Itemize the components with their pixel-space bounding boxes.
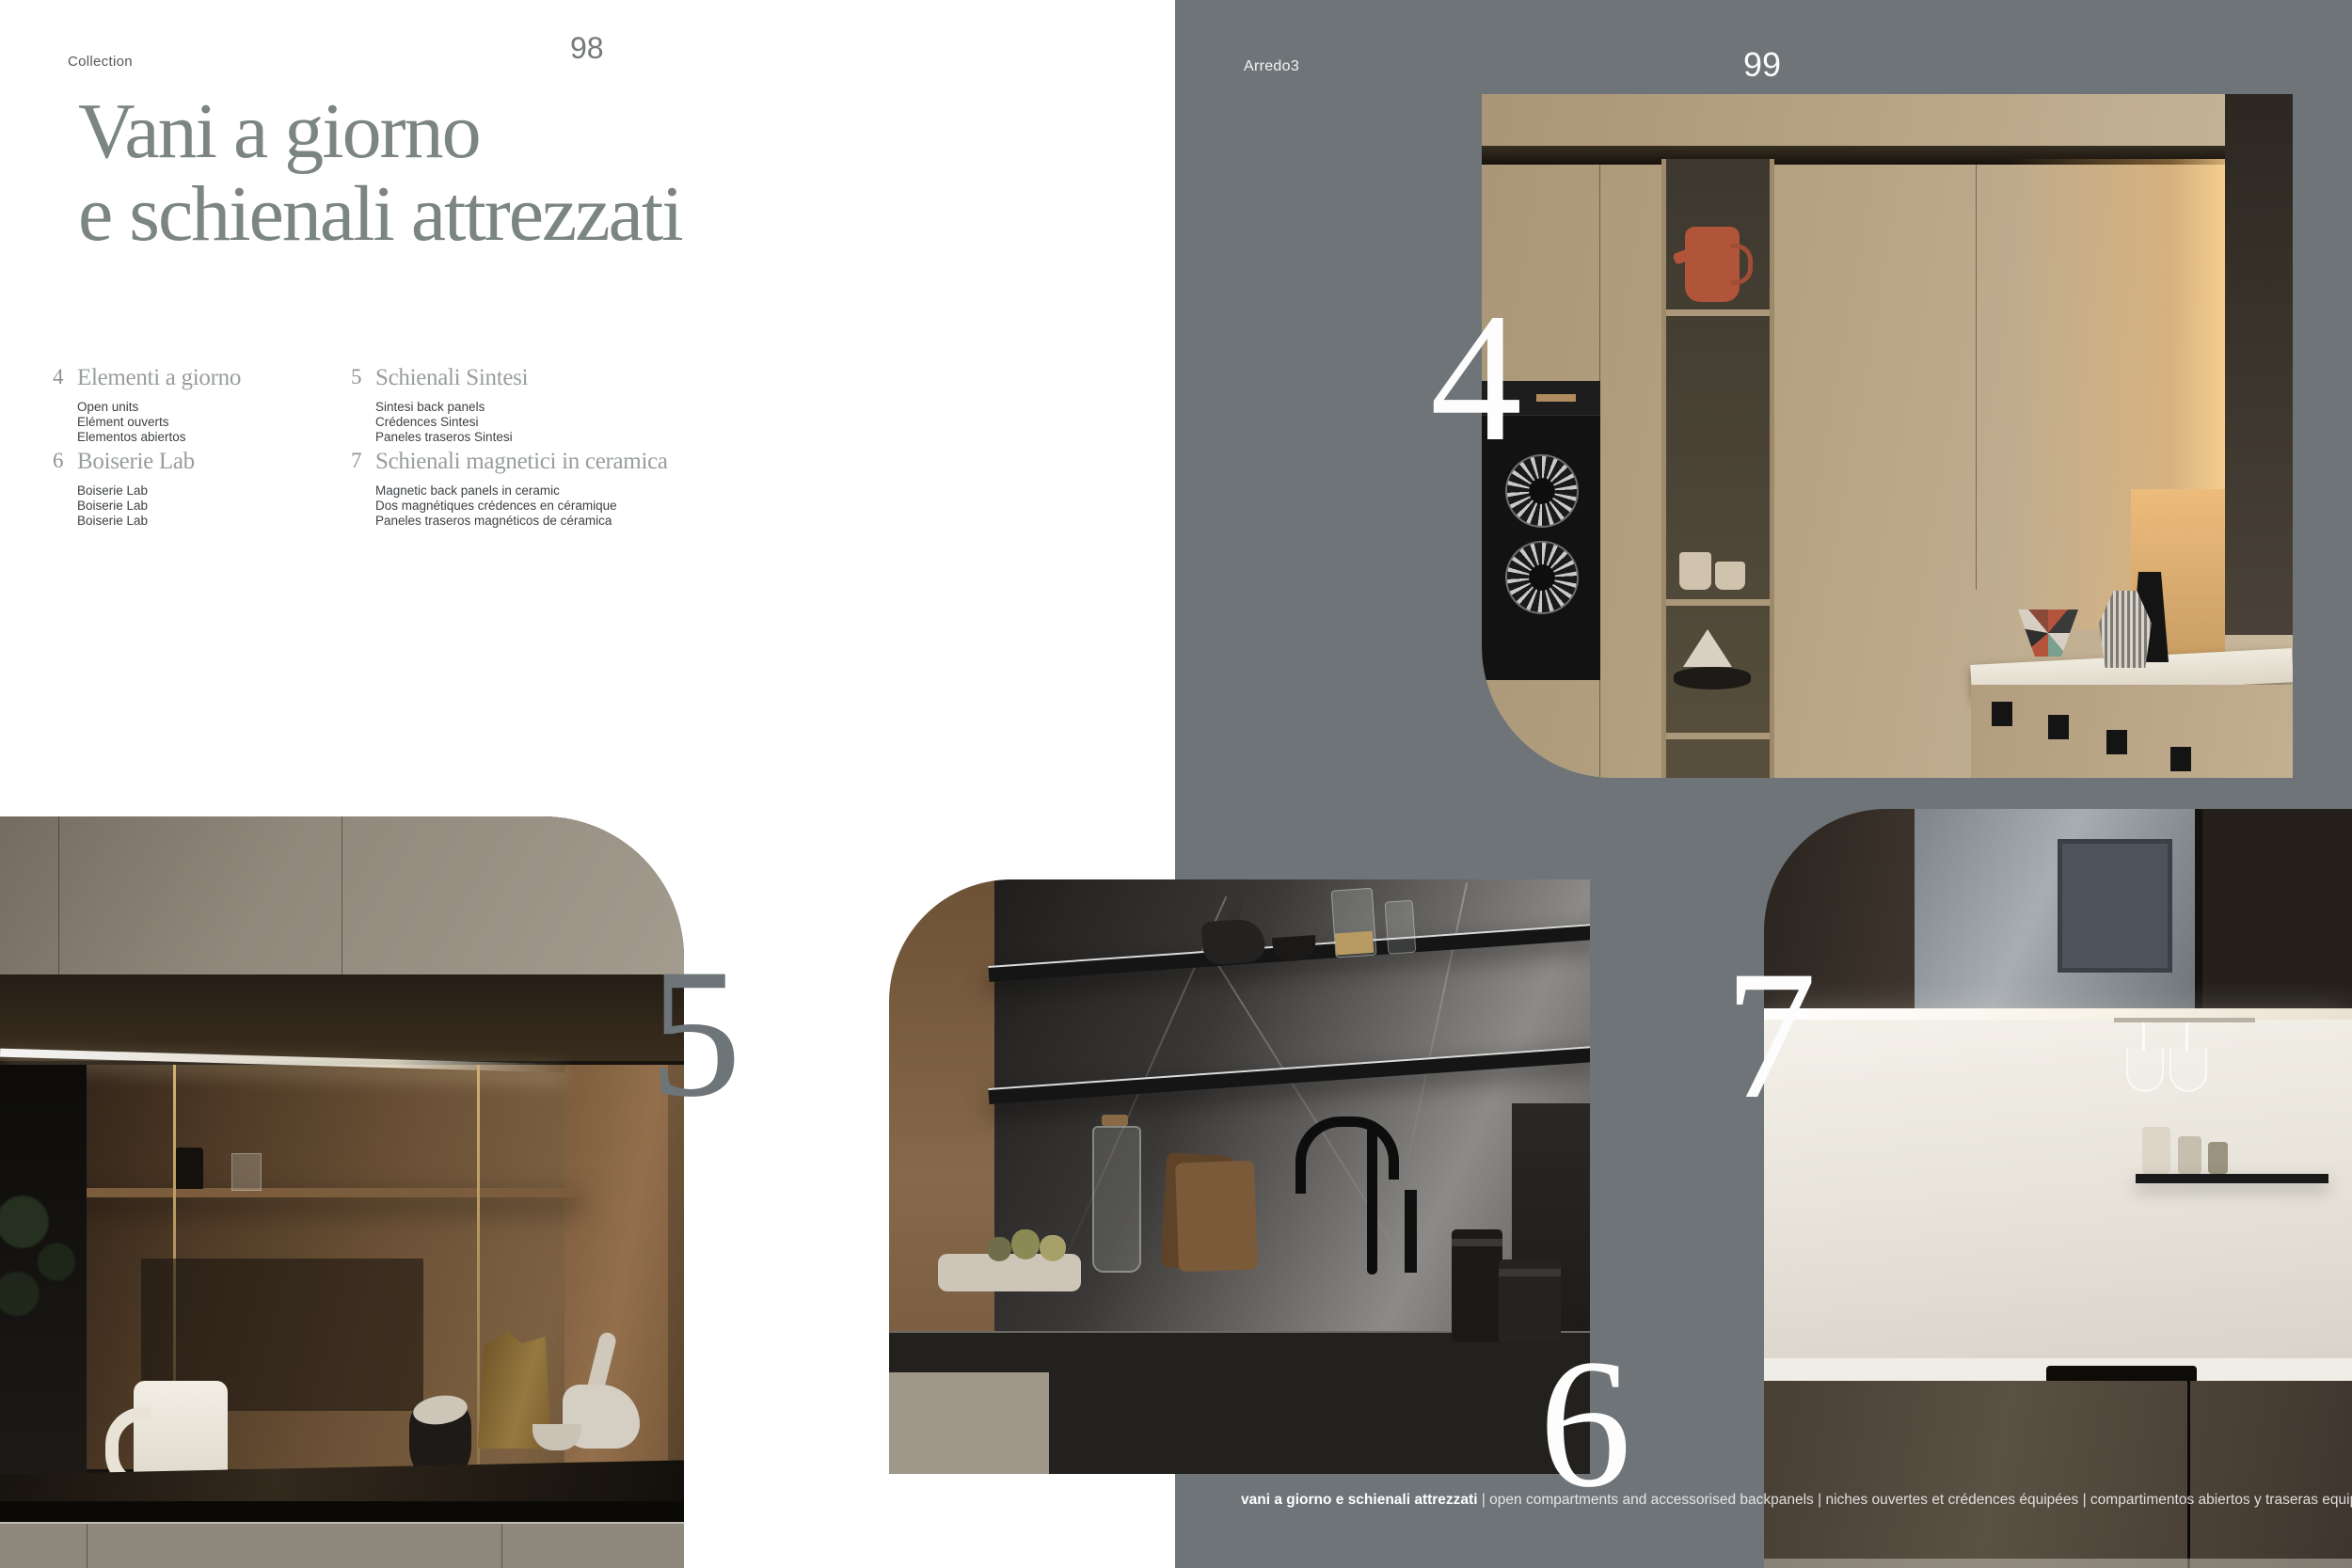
dark-wood-base-cabinets <box>1764 1381 2352 1568</box>
glass-carafe <box>1092 1126 1141 1273</box>
canister <box>2208 1142 2228 1174</box>
index-item-translations: Open units Elément ouverts Elementos abi… <box>77 400 241 446</box>
page-number-right: 99 <box>1743 45 1781 85</box>
terracotta-teapot <box>1685 227 1740 302</box>
glass-canister <box>1385 900 1417 955</box>
open-shelf-niche <box>1661 159 1774 778</box>
dark-side-panel <box>2225 94 2293 635</box>
led-light-strip <box>1764 1008 2352 1020</box>
caption-bar: vani a giorno e schienali attrezzati | o… <box>1241 1491 2352 1510</box>
glass-rail <box>2114 1018 2255 1022</box>
canister <box>2178 1136 2201 1174</box>
canister <box>2142 1127 2170 1174</box>
glass-jar <box>231 1153 262 1191</box>
jar-grains <box>1335 931 1375 956</box>
figure-number-6: 6 <box>1539 1332 1631 1516</box>
figure-number-5: 5 <box>649 942 741 1126</box>
photo-sintesi-back-panel <box>0 816 684 1568</box>
wine-glass <box>2169 1049 2207 1092</box>
figure-number-7: 7 <box>1724 943 1817 1128</box>
pear <box>1011 1229 1040 1259</box>
index-item-4: 4 Elementi a giorno Open units Elément o… <box>53 365 241 446</box>
bottle-silhouette <box>175 1148 203 1189</box>
brass-rod <box>477 1065 480 1469</box>
page-title: Vani a giorno e schienali attrezzati <box>78 90 682 256</box>
page-title-line2: e schienali attrezzati <box>78 173 682 256</box>
index-item-6: 6 Boiserie Lab Boiserie Lab Boiserie Lab… <box>53 449 195 530</box>
index-item-translations: Sintesi back panels Crédences Sintesi Pa… <box>375 400 528 446</box>
collection-label: Collection <box>68 54 133 70</box>
photo-ceramic-back-panel <box>1764 809 2352 1568</box>
magnetic-black-shelf <box>2136 1174 2328 1183</box>
stone-strainer <box>1683 629 1732 667</box>
index-item-number: 6 <box>53 449 73 473</box>
soap-dispenser <box>1405 1190 1417 1273</box>
caption-bold: vani a giorno e schienali attrezzati <box>1241 1492 1478 1508</box>
index-item-number: 4 <box>53 365 73 389</box>
caption-translations: | open compartments and accessorised bac… <box>1478 1492 2352 1508</box>
ceramic-cup <box>1679 552 1711 590</box>
page-title-line1: Vani a giorno <box>78 90 682 173</box>
page-number-left: 98 <box>570 31 604 66</box>
black-bowl <box>1272 935 1317 962</box>
brand-label: Arredo3 <box>1244 58 1299 75</box>
wine-glass <box>2126 1049 2164 1092</box>
picture-frame-reflection <box>2058 839 2172 973</box>
index-item-title: Schienali magnetici in ceramica <box>375 449 668 475</box>
index-item-number: 7 <box>351 449 372 473</box>
ceramic-cup <box>1715 562 1745 590</box>
index-item-title: Schienali Sintesi <box>375 365 528 391</box>
index-item-translations: Magnetic back panels in ceramic Dos magn… <box>375 483 668 530</box>
oven-fan <box>1505 541 1579 614</box>
light-ceramic-backsplash <box>1764 1020 2352 1358</box>
catalog-spread: Collection 98 Vani a giorno e schienali … <box>0 0 2352 1568</box>
mortar <box>1201 918 1266 965</box>
black-canister <box>1452 1229 1502 1342</box>
base-cabinet-fronts <box>0 1522 684 1568</box>
mirror-glass-door <box>1915 809 2195 1008</box>
photo-open-units <box>1482 94 2293 778</box>
figure-number-4: 4 <box>1430 286 1522 470</box>
plant-silhouette <box>0 1174 102 1334</box>
base-cabinets <box>1971 685 2293 778</box>
index-item-title: Boiserie Lab <box>77 449 195 475</box>
index-item-5: 5 Schienali Sintesi Sintesi back panels … <box>351 365 528 446</box>
index-item-7: 7 Schienali magnetici in ceramica Magnet… <box>351 449 668 530</box>
pear <box>1040 1235 1066 1261</box>
wood-shelf <box>56 1188 583 1197</box>
index-item-number: 5 <box>351 365 372 389</box>
index-item-translations: Boiserie Lab Boiserie Lab Boiserie Lab <box>77 483 195 530</box>
index-item-title: Elementi a giorno <box>77 365 241 391</box>
photo-boiserie-lab <box>889 879 1590 1474</box>
cutting-board <box>1175 1161 1258 1273</box>
pear <box>987 1237 1011 1261</box>
plate-stack <box>1674 667 1751 689</box>
base-cabinet <box>889 1372 1049 1474</box>
